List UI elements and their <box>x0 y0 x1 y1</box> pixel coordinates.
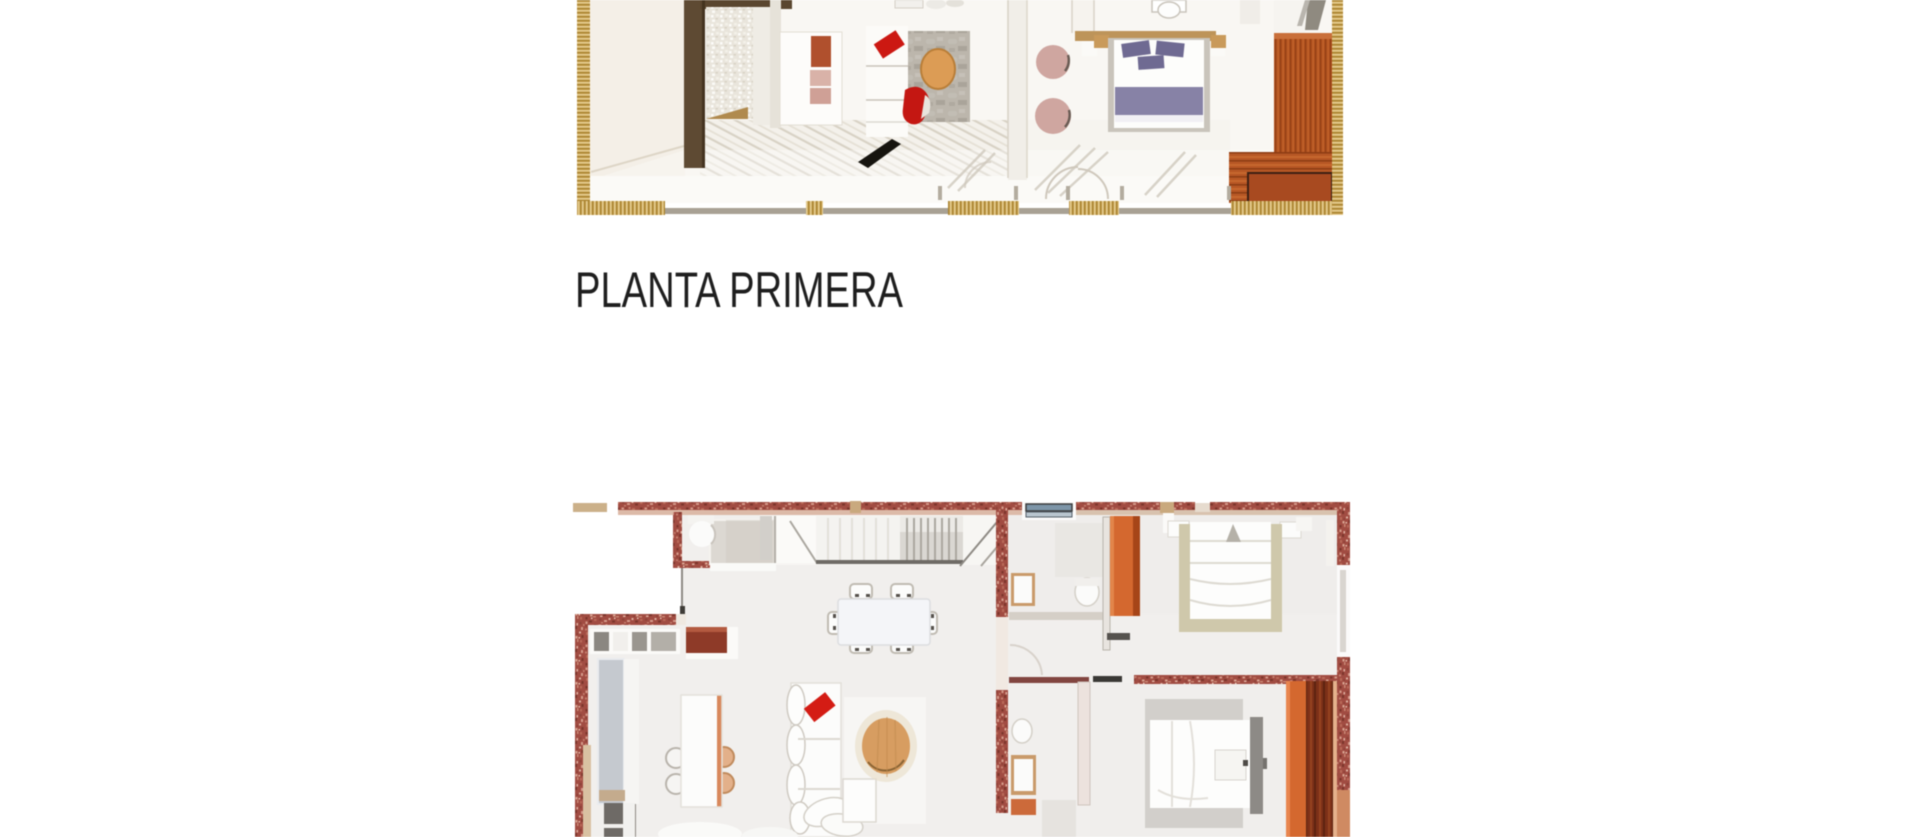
svg-text:PLANTA PRIMERA: PLANTA PRIMERA <box>575 262 903 318</box>
